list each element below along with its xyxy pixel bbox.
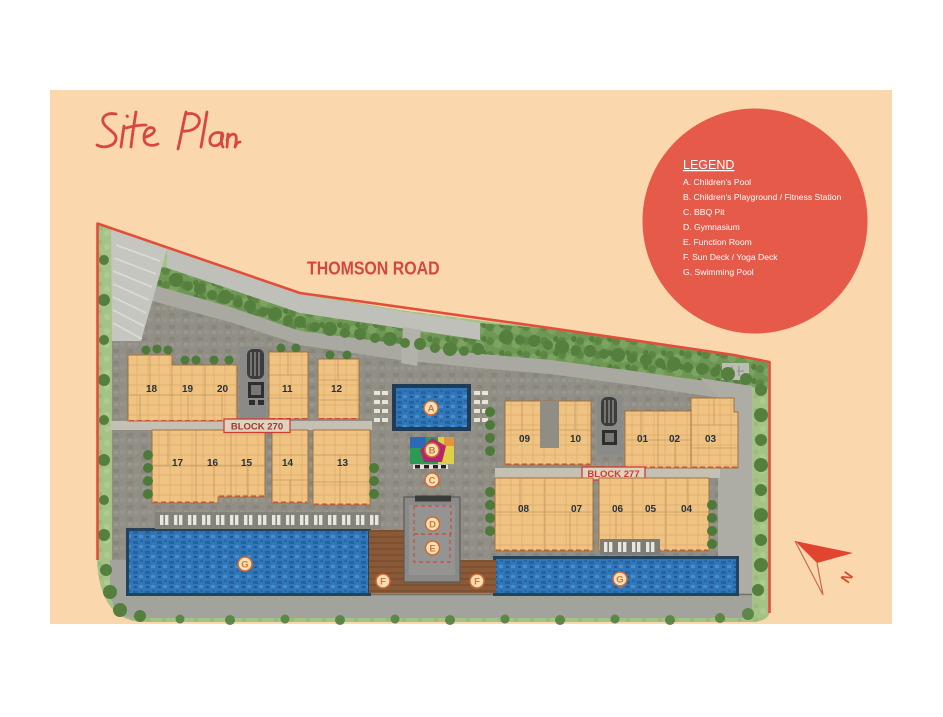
svg-text:G. Swimming Pool: G. Swimming Pool <box>683 267 754 277</box>
svg-text:LEGEND: LEGEND <box>683 158 734 172</box>
svg-text:BLOCK 270: BLOCK 270 <box>231 422 283 433</box>
svg-text:05: 05 <box>645 504 657 515</box>
svg-text:06: 06 <box>612 504 624 515</box>
svg-text:19: 19 <box>182 384 194 395</box>
svg-text:14: 14 <box>282 458 294 469</box>
svg-text:D. Gymnasium: D. Gymnasium <box>683 222 740 232</box>
svg-text:01: 01 <box>637 434 649 445</box>
svg-text:D: D <box>429 520 436 531</box>
svg-text:E. Function Room: E. Function Room <box>683 237 752 247</box>
svg-text:F: F <box>380 577 386 588</box>
svg-text:02: 02 <box>669 434 681 445</box>
svg-text:16: 16 <box>207 458 219 469</box>
svg-text:B. Children's Playground / Fit: B. Children's Playground / Fitness Stati… <box>683 192 842 202</box>
svg-text:17: 17 <box>172 458 184 469</box>
svg-text:G: G <box>616 575 623 586</box>
svg-text:10: 10 <box>570 434 582 445</box>
svg-text:E: E <box>429 544 435 555</box>
svg-text:G: G <box>241 560 248 571</box>
svg-text:04: 04 <box>681 504 693 515</box>
svg-text:B: B <box>429 446 436 457</box>
svg-text:13: 13 <box>337 458 349 469</box>
svg-text:12: 12 <box>331 384 343 395</box>
svg-text:09: 09 <box>519 434 531 445</box>
svg-text:F: F <box>474 577 480 588</box>
svg-text:A: A <box>428 404 435 415</box>
svg-text:20: 20 <box>217 384 229 395</box>
svg-text:07: 07 <box>571 504 583 515</box>
svg-text:A. Children's Pool: A. Children's Pool <box>683 177 751 187</box>
svg-text:03: 03 <box>705 434 717 445</box>
svg-text:08: 08 <box>518 504 530 515</box>
svg-text:F. Sun Deck / Yoga Deck: F. Sun Deck / Yoga Deck <box>683 252 778 262</box>
svg-text:THOMSON ROAD: THOMSON ROAD <box>307 257 440 278</box>
svg-text:11: 11 <box>282 384 293 395</box>
svg-text:18: 18 <box>146 384 158 395</box>
svg-text:C: C <box>429 476 436 487</box>
svg-text:15: 15 <box>241 458 253 469</box>
svg-text:C. BBQ Pit: C. BBQ Pit <box>683 207 725 217</box>
